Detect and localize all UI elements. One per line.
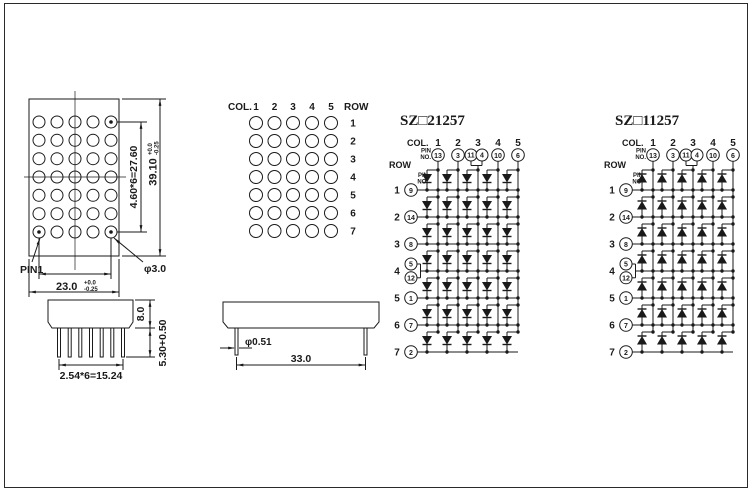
junction-dot	[660, 215, 663, 218]
junction-dot	[640, 350, 643, 353]
col-number: 2	[670, 138, 676, 149]
junction-dot	[720, 215, 723, 218]
junction-dot	[680, 350, 683, 353]
junction-dot	[496, 222, 499, 225]
row-pin-number: 5	[624, 262, 628, 269]
row-number: 6	[394, 321, 400, 332]
row-pin-number: 8	[624, 242, 628, 249]
pin1-label: PIN1	[20, 264, 44, 276]
junction-dot	[476, 249, 479, 252]
junction-dot	[505, 269, 508, 272]
col-number: 2	[455, 138, 461, 149]
row-number: 7	[609, 348, 615, 359]
col-number: 3	[475, 138, 481, 149]
junction-dot	[456, 188, 459, 191]
junction-dot	[485, 323, 488, 326]
junction-dot	[651, 222, 654, 225]
row-pin-number: 7	[624, 323, 628, 330]
junction-dot	[505, 215, 508, 218]
col-label: COL.	[407, 138, 429, 148]
junction-dot	[731, 296, 734, 299]
pin	[122, 328, 125, 357]
junction-dot	[436, 303, 439, 306]
junction-dot	[700, 350, 703, 353]
junction-dot	[496, 296, 499, 299]
col-pin-number: 4	[480, 153, 484, 160]
junction-dot	[465, 188, 468, 191]
junction-dot	[425, 296, 428, 299]
row-pin-number: 1	[409, 296, 413, 303]
junction-dot	[445, 269, 448, 272]
row-number: 1	[394, 186, 400, 197]
junction-dot	[671, 276, 674, 279]
dim-body-width-label: 33.0	[291, 353, 312, 365]
junction-dot	[660, 188, 663, 191]
junction-dot	[516, 215, 519, 218]
junction-dot	[691, 296, 694, 299]
junction-dot	[651, 242, 654, 245]
row-header-label: ROW	[344, 102, 369, 113]
junction-dot	[445, 242, 448, 245]
row-number: 6	[609, 321, 615, 332]
junction-dot	[720, 242, 723, 245]
drawing-border	[5, 4, 748, 488]
junction-dot	[700, 188, 703, 191]
row-number: 3	[609, 240, 615, 251]
junction-dot	[456, 222, 459, 225]
junction-dot	[691, 168, 694, 171]
junction-dot	[691, 249, 694, 252]
junction-dot	[700, 323, 703, 326]
junction-dot	[671, 323, 674, 326]
junction-dot	[496, 215, 499, 218]
junction-dot	[711, 276, 714, 279]
junction-dot	[436, 276, 439, 279]
junction-dot	[671, 269, 674, 272]
dim-height-tol-plus: +0.0	[148, 142, 154, 155]
row-pin-number: 1	[624, 296, 628, 303]
junction-dot	[651, 195, 654, 198]
junction-dot	[496, 168, 499, 171]
junction-dot	[505, 323, 508, 326]
junction-dot	[456, 195, 459, 198]
row-pin-number: 12	[407, 275, 415, 282]
junction-dot	[731, 222, 734, 225]
dim-col-pitch-group: 4.60*6=27.60	[128, 145, 140, 208]
pin-no-label: NO.	[420, 155, 431, 161]
junction-dot	[456, 269, 459, 272]
junction-dot	[456, 323, 459, 326]
row-pin-number: 2	[409, 350, 413, 357]
junction-dot	[436, 296, 439, 299]
junction-dot	[711, 269, 714, 272]
junction-dot	[680, 323, 683, 326]
col-pin-number: 11	[467, 153, 475, 160]
junction-dot	[640, 296, 643, 299]
pin	[58, 328, 61, 357]
junction-dot	[711, 303, 714, 306]
junction-dot	[671, 188, 674, 191]
row-pin-number: 7	[409, 323, 413, 330]
junction-dot	[691, 188, 694, 191]
schematic-title: SZ□21257	[400, 113, 465, 129]
dim-height-label: 39.10	[148, 158, 160, 186]
junction-dot	[516, 276, 519, 279]
junction-dot	[456, 242, 459, 245]
junction-dot	[516, 168, 519, 171]
pin	[79, 328, 82, 357]
junction-dot	[691, 269, 694, 272]
junction-dot	[496, 188, 499, 191]
junction-dot	[720, 188, 723, 191]
col-pin-number: 3	[671, 153, 675, 160]
junction-dot	[436, 269, 439, 272]
row-number: 1	[609, 186, 615, 197]
junction-dot	[516, 330, 519, 333]
junction-dot	[425, 188, 428, 191]
junction-dot	[731, 215, 734, 218]
junction-dot	[711, 330, 714, 333]
col-header-label: COL.	[228, 102, 252, 113]
dim-pin-pitch-label: 2.54*6=15.24	[60, 370, 123, 382]
junction-dot	[436, 215, 439, 218]
junction-dot	[516, 323, 519, 326]
junction-dot	[425, 323, 428, 326]
junction-dot	[680, 296, 683, 299]
col-pin-number: 10	[494, 153, 502, 160]
dim-pin-length-group: 5.30+0.50	[157, 319, 169, 366]
junction-dot	[680, 188, 683, 191]
junction-dot	[516, 303, 519, 306]
junction-dot	[496, 276, 499, 279]
row-number: 5	[350, 191, 356, 202]
row-pin-number: 5	[409, 262, 413, 269]
junction-dot	[425, 242, 428, 245]
col-number: 2	[272, 102, 278, 113]
col-number: 1	[650, 138, 656, 149]
junction-dot	[731, 242, 734, 245]
junction-dot	[425, 269, 428, 272]
dim-body-height-group: 8.0	[135, 307, 147, 322]
junction-dot	[436, 222, 439, 225]
hole-diameter-label: φ3.0	[144, 263, 166, 275]
dim-width-tol-plus: +0.0	[84, 281, 97, 287]
junction-dot	[496, 249, 499, 252]
col-number: 5	[515, 138, 521, 149]
row-number: 7	[350, 227, 356, 238]
col-number: 1	[253, 102, 259, 113]
junction-dot	[671, 222, 674, 225]
junction-dot	[640, 188, 643, 191]
junction-dot	[516, 222, 519, 225]
dim-height-group: 39.10 +0.0 -0.25	[148, 141, 161, 186]
junction-dot	[445, 296, 448, 299]
pin	[100, 328, 103, 357]
col-pin-number: 3	[456, 153, 460, 160]
junction-dot	[680, 269, 683, 272]
junction-dot	[465, 269, 468, 272]
row-number: 5	[609, 294, 615, 305]
junction-dot	[731, 303, 734, 306]
col-number: 5	[730, 138, 736, 149]
junction-dot	[691, 276, 694, 279]
junction-dot	[436, 242, 439, 245]
col-number: 4	[495, 138, 501, 149]
junction-dot	[485, 215, 488, 218]
junction-dot	[711, 222, 714, 225]
row-pin-number: 9	[409, 188, 413, 195]
pin-no-label: PIN	[421, 149, 431, 155]
pin	[111, 328, 114, 357]
row-number: 2	[394, 213, 400, 224]
junction-dot	[516, 269, 519, 272]
col-number: 4	[309, 102, 315, 113]
junction-dot	[700, 296, 703, 299]
row-number: 6	[350, 209, 356, 220]
junction-dot	[476, 269, 479, 272]
junction-dot	[436, 249, 439, 252]
row-pin-number: 2	[624, 350, 628, 357]
junction-dot	[651, 323, 654, 326]
junction-dot	[640, 269, 643, 272]
junction-dot	[516, 188, 519, 191]
col-number: 3	[690, 138, 696, 149]
junction-dot	[445, 188, 448, 191]
row-pin-number: 14	[622, 215, 630, 222]
row-number: 4	[350, 173, 356, 184]
row-pin-number: 12	[622, 275, 630, 282]
junction-dot	[476, 188, 479, 191]
junction-dot	[456, 168, 459, 171]
junction-dot	[700, 215, 703, 218]
junction-dot	[505, 296, 508, 299]
junction-dot	[456, 249, 459, 252]
junction-dot	[436, 188, 439, 191]
junction-dot	[720, 296, 723, 299]
junction-dot	[711, 195, 714, 198]
junction-dot	[496, 269, 499, 272]
junction-dot	[516, 249, 519, 252]
dim-width-tol-minus: -0.25	[84, 287, 98, 293]
row-number: 4	[609, 267, 615, 278]
junction-dot	[711, 215, 714, 218]
dim-pin-diameter-label: φ0.51	[245, 337, 272, 348]
junction-dot	[691, 215, 694, 218]
junction-dot	[731, 188, 734, 191]
junction-dot	[680, 215, 683, 218]
junction-dot	[731, 323, 734, 326]
junction-dot	[476, 323, 479, 326]
col-pin-number: 11	[682, 153, 690, 160]
junction-dot	[436, 323, 439, 326]
junction-dot	[485, 242, 488, 245]
junction-dot	[651, 188, 654, 191]
alignment-mark	[38, 231, 41, 234]
alignment-mark	[110, 121, 113, 124]
col-number: 3	[290, 102, 296, 113]
junction-dot	[476, 330, 479, 333]
col-pin-number: 13	[649, 153, 657, 160]
junction-dot	[456, 215, 459, 218]
junction-dot	[671, 215, 674, 218]
junction-dot	[660, 350, 663, 353]
junction-dot	[660, 269, 663, 272]
junction-dot	[496, 242, 499, 245]
col-number: 5	[328, 102, 334, 113]
junction-dot	[711, 296, 714, 299]
junction-dot	[496, 195, 499, 198]
junction-dot	[445, 323, 448, 326]
col-pin-number: 6	[731, 153, 735, 160]
junction-dot	[516, 195, 519, 198]
junction-dot	[476, 296, 479, 299]
junction-dot	[425, 350, 428, 353]
junction-dot	[660, 296, 663, 299]
junction-dot	[476, 242, 479, 245]
junction-dot	[731, 195, 734, 198]
junction-dot	[476, 303, 479, 306]
junction-dot	[485, 269, 488, 272]
col-number: 4	[710, 138, 716, 149]
junction-dot	[680, 242, 683, 245]
junction-dot	[731, 330, 734, 333]
junction-dot	[425, 215, 428, 218]
junction-dot	[505, 242, 508, 245]
pin	[364, 328, 367, 355]
col-pin-number: 4	[695, 153, 699, 160]
junction-dot	[720, 350, 723, 353]
row-number: 7	[394, 348, 400, 359]
pin-no-label: PIN	[636, 149, 646, 155]
junction-dot	[711, 168, 714, 171]
dim-body-height-label: 8.0	[135, 307, 147, 322]
junction-dot	[671, 242, 674, 245]
row-number: 2	[350, 137, 356, 148]
col-label: COL.	[622, 138, 644, 148]
junction-dot	[651, 168, 654, 171]
junction-dot	[436, 168, 439, 171]
row-pin-number: 8	[409, 242, 413, 249]
junction-dot	[651, 276, 654, 279]
row-number: 1	[350, 119, 356, 130]
junction-dot	[496, 303, 499, 306]
junction-dot	[456, 276, 459, 279]
alignment-mark	[110, 231, 113, 234]
row-number: 3	[394, 240, 400, 251]
junction-dot	[700, 242, 703, 245]
junction-dot	[465, 215, 468, 218]
col-pin-number: 6	[516, 153, 520, 160]
junction-dot	[671, 249, 674, 252]
junction-dot	[496, 323, 499, 326]
junction-dot	[720, 323, 723, 326]
pin	[68, 328, 71, 357]
col-pin-number: 13	[434, 153, 442, 160]
pin	[90, 328, 93, 357]
row-number: 2	[609, 213, 615, 224]
junction-dot	[496, 330, 499, 333]
junction-dot	[691, 195, 694, 198]
row-number: 3	[350, 155, 356, 166]
junction-dot	[731, 276, 734, 279]
row-number: 5	[394, 294, 400, 305]
junction-dot	[465, 323, 468, 326]
junction-dot	[671, 168, 674, 171]
dim-pin-length-label: 5.30+0.50	[157, 319, 169, 366]
junction-dot	[485, 188, 488, 191]
junction-dot	[651, 215, 654, 218]
junction-dot	[731, 269, 734, 272]
junction-dot	[651, 249, 654, 252]
junction-dot	[456, 330, 459, 333]
junction-dot	[731, 249, 734, 252]
junction-dot	[651, 296, 654, 299]
junction-dot	[700, 269, 703, 272]
junction-dot	[640, 242, 643, 245]
junction-dot	[691, 242, 694, 245]
junction-dot	[476, 168, 479, 171]
junction-dot	[711, 188, 714, 191]
junction-dot	[485, 350, 488, 353]
junction-dot	[505, 188, 508, 191]
junction-dot	[671, 195, 674, 198]
junction-dot	[436, 330, 439, 333]
row-pin-number: 14	[407, 215, 415, 222]
junction-dot	[485, 296, 488, 299]
dim-width-label: 23.0	[56, 281, 77, 293]
pin	[235, 328, 238, 355]
junction-dot	[505, 350, 508, 353]
junction-dot	[711, 242, 714, 245]
junction-dot	[465, 242, 468, 245]
junction-dot	[445, 215, 448, 218]
junction-dot	[476, 222, 479, 225]
dim-col-pitch-label: 4.60*6=27.60	[128, 145, 140, 208]
junction-dot	[476, 215, 479, 218]
junction-dot	[640, 323, 643, 326]
row-label: ROW	[604, 160, 627, 170]
dim-height-tol-minus: -0.25	[155, 141, 161, 155]
junction-dot	[711, 249, 714, 252]
col-number: 1	[435, 138, 441, 149]
junction-dot	[465, 296, 468, 299]
junction-dot	[651, 303, 654, 306]
pin-no-label: NO.	[635, 155, 646, 161]
junction-dot	[660, 242, 663, 245]
row-label: ROW	[389, 160, 412, 170]
datasheet-drawing: PIN1 φ3.0 4.60*6=27.60 39.10 +0.0 -0.25 …	[0, 0, 754, 491]
row-number: 4	[394, 267, 400, 278]
junction-dot	[436, 195, 439, 198]
junction-dot	[516, 296, 519, 299]
junction-dot	[651, 269, 654, 272]
junction-dot	[731, 168, 734, 171]
junction-dot	[516, 242, 519, 245]
junction-dot	[691, 330, 694, 333]
junction-dot	[671, 330, 674, 333]
junction-dot	[456, 296, 459, 299]
junction-dot	[476, 195, 479, 198]
junction-dot	[720, 269, 723, 272]
junction-dot	[465, 350, 468, 353]
junction-dot	[671, 303, 674, 306]
junction-dot	[711, 323, 714, 326]
junction-dot	[671, 296, 674, 299]
junction-dot	[445, 350, 448, 353]
junction-dot	[691, 222, 694, 225]
junction-dot	[651, 330, 654, 333]
junction-dot	[660, 323, 663, 326]
